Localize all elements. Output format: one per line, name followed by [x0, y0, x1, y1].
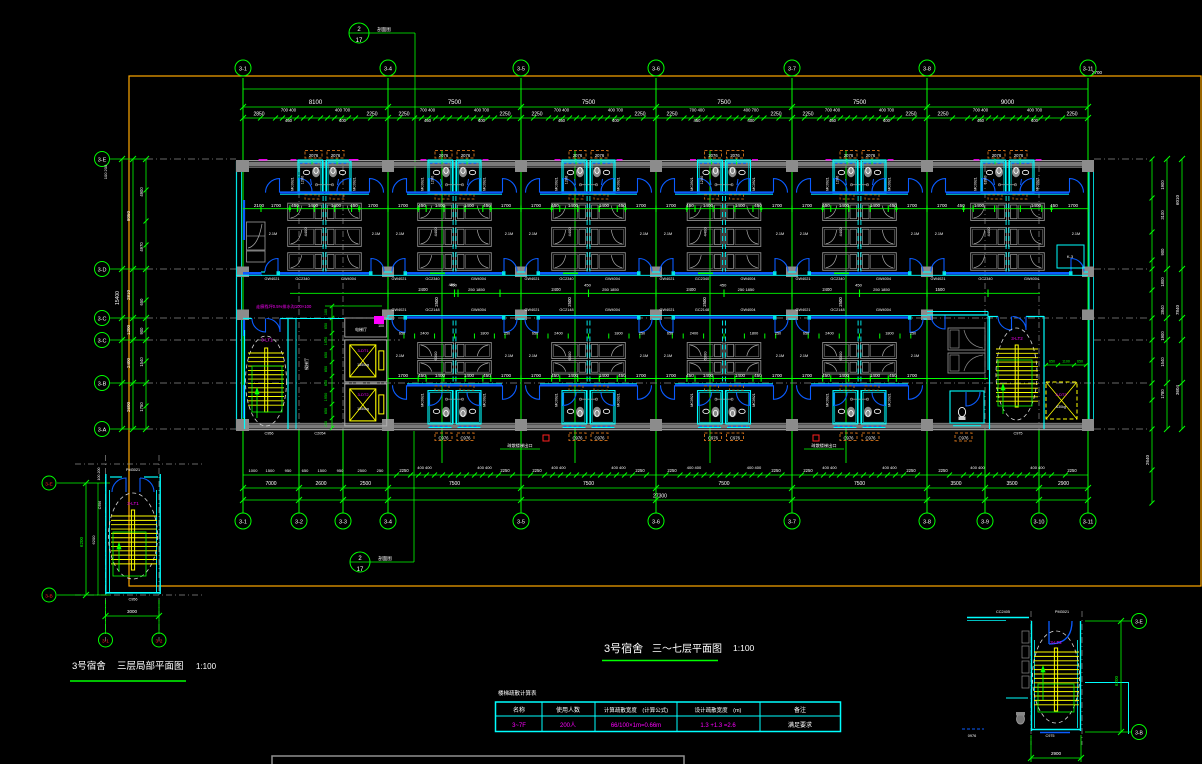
- svg-text:1800: 1800: [480, 332, 488, 336]
- svg-text:GW4021: GW4021: [931, 277, 946, 281]
- svg-text:450: 450: [285, 118, 293, 123]
- svg-text:2.1M: 2.1M: [396, 354, 404, 358]
- svg-text:2076: 2076: [573, 153, 583, 158]
- svg-text:2.1M: 2.1M: [800, 232, 808, 236]
- svg-text:400 400: 400 400: [687, 465, 702, 470]
- svg-text:250: 250: [910, 332, 916, 336]
- svg-text:GW4021: GW4021: [525, 308, 540, 312]
- svg-text:450: 450: [418, 373, 426, 378]
- svg-text:450: 450: [618, 203, 626, 208]
- svg-text:2.1M: 2.1M: [396, 232, 404, 236]
- svg-text:2.1M: 2.1M: [640, 232, 648, 236]
- svg-text:1750: 1750: [139, 402, 144, 412]
- svg-text:使用人数: 使用人数: [556, 706, 580, 714]
- svg-text:MC0921: MC0921: [483, 393, 487, 407]
- svg-text:250 1850: 250 1850: [738, 287, 755, 292]
- svg-text:GW4004: GW4004: [741, 308, 756, 312]
- svg-text:4400: 4400: [303, 227, 308, 237]
- svg-text:1400: 1400: [599, 203, 610, 208]
- svg-text:电梯厅: 电梯厅: [355, 326, 367, 332]
- svg-text:7500: 7500: [854, 481, 865, 487]
- svg-text:3-1: 3-1: [239, 520, 247, 526]
- svg-text:GC2340: GC2340: [425, 277, 439, 281]
- svg-text:1780: 1780: [1160, 389, 1165, 399]
- svg-text:6300: 6300: [838, 351, 843, 361]
- svg-text:3-DT3: 3-DT3: [1055, 392, 1067, 397]
- svg-text:4400: 4400: [567, 227, 572, 237]
- svg-text:1400: 1400: [464, 373, 475, 378]
- svg-text:1400: 1400: [870, 203, 881, 208]
- svg-text:GW4021: GW4021: [392, 308, 407, 312]
- svg-text:2250: 2250: [635, 468, 645, 473]
- svg-text:630kg: 630kg: [1056, 405, 1066, 409]
- svg-text:GC2148: GC2148: [830, 308, 844, 312]
- svg-text:2076: 2076: [730, 153, 740, 158]
- svg-text:7000: 7000: [265, 481, 276, 487]
- svg-text:MC0921: MC0921: [752, 177, 756, 191]
- svg-text:1400: 1400: [435, 203, 446, 208]
- svg-text:1000: 1000: [249, 468, 259, 473]
- svg-text:GW4004: GW4004: [605, 277, 620, 281]
- svg-text:3-2: 3-2: [295, 520, 303, 526]
- svg-text:3-7: 3-7: [788, 67, 796, 73]
- svg-text:C956: C956: [128, 598, 137, 602]
- svg-text:2.1M: 2.1M: [664, 354, 672, 358]
- svg-text:100: 100: [378, 324, 384, 328]
- svg-text:2840: 2840: [1160, 305, 1165, 315]
- svg-text:17: 17: [356, 38, 363, 44]
- svg-text:2.1M: 2.1M: [1072, 232, 1080, 236]
- svg-text:2076: 2076: [992, 153, 1002, 158]
- svg-text:1400: 1400: [1031, 203, 1042, 208]
- svg-text:1400: 1400: [735, 373, 746, 378]
- svg-text:1400: 1400: [974, 203, 985, 208]
- svg-text:GW4021: GW4021: [392, 277, 407, 281]
- svg-text:1700: 1700: [636, 203, 647, 208]
- svg-text:400 400: 400 400: [551, 465, 566, 470]
- svg-text:2.1M: 2.1M: [640, 354, 648, 358]
- svg-text:1700: 1700: [398, 373, 409, 378]
- svg-text:450: 450: [558, 118, 566, 123]
- svg-text:C976: C976: [958, 436, 969, 441]
- svg-text:1700: 1700: [636, 373, 647, 378]
- svg-text:100: 100: [324, 421, 328, 427]
- svg-text:3-C: 3-C: [98, 317, 107, 323]
- svg-text:MC0921: MC0921: [555, 177, 559, 191]
- svg-text:2250: 2250: [1067, 468, 1077, 473]
- svg-text:650: 650: [324, 408, 328, 414]
- svg-text:6300: 6300: [703, 351, 708, 361]
- svg-text:7500: 7500: [449, 481, 460, 487]
- svg-text:400 400: 400 400: [477, 465, 492, 470]
- svg-text:700 400: 700 400: [554, 108, 570, 113]
- svg-text:3-LT1: 3-LT1: [127, 501, 139, 506]
- svg-text:2400: 2400: [690, 332, 698, 336]
- svg-text:C976: C976: [843, 435, 854, 440]
- svg-text:1400: 1400: [308, 203, 319, 208]
- svg-text:1:100: 1:100: [733, 643, 755, 653]
- svg-text:3~7F: 3~7F: [512, 723, 526, 729]
- svg-text:1700: 1700: [937, 203, 948, 208]
- svg-text:剖面图: 剖面图: [378, 555, 392, 562]
- svg-text:3100: 3100: [1160, 210, 1165, 220]
- svg-text:3-5: 3-5: [517, 520, 525, 526]
- svg-text:7500: 7500: [718, 481, 729, 487]
- svg-text:1540: 1540: [1160, 357, 1165, 367]
- svg-text:1400: 1400: [703, 203, 714, 208]
- svg-text:1700: 1700: [398, 203, 409, 208]
- svg-text:1700: 1700: [907, 203, 918, 208]
- svg-text:3-E: 3-E: [45, 482, 52, 488]
- svg-text:400: 400: [612, 118, 620, 123]
- svg-text:C976: C976: [438, 435, 449, 440]
- svg-text:1400: 1400: [839, 373, 850, 378]
- svg-text:0976: 0976: [968, 734, 976, 738]
- svg-text:1700: 1700: [531, 373, 542, 378]
- svg-text:GW4021: GW4021: [796, 277, 811, 281]
- svg-text:1200: 1200: [431, 176, 435, 184]
- svg-text:GW4004: GW4004: [876, 308, 891, 312]
- svg-text:1500: 1500: [318, 468, 328, 473]
- svg-text:MC0921: MC0921: [752, 393, 756, 407]
- svg-text:4900: 4900: [139, 187, 144, 197]
- svg-text:1700: 1700: [501, 373, 512, 378]
- svg-text:1400: 1400: [568, 203, 579, 208]
- svg-text:1100: 1100: [1062, 360, 1070, 364]
- svg-text:2400: 2400: [418, 287, 428, 292]
- svg-text:250 1850: 250 1850: [602, 287, 619, 292]
- svg-text:3-6: 3-6: [652, 67, 660, 73]
- svg-text:3-A: 3-A: [98, 428, 107, 434]
- svg-text:1500: 1500: [266, 468, 276, 473]
- svg-text:400 400: 400 400: [882, 465, 897, 470]
- svg-text:6010: 6010: [1175, 194, 1180, 205]
- svg-text:400: 400: [1031, 118, 1039, 123]
- svg-text:C976: C976: [730, 435, 741, 440]
- svg-text:400: 400: [883, 118, 891, 123]
- svg-text:3-4: 3-4: [384, 67, 392, 73]
- svg-text:1700: 1700: [802, 373, 813, 378]
- svg-text:9000: 9000: [1001, 100, 1015, 106]
- svg-text:1900: 1900: [1160, 331, 1165, 341]
- svg-text:2500: 2500: [360, 481, 371, 487]
- svg-text:450: 450: [754, 203, 762, 208]
- svg-text:MC0921: MC0921: [421, 393, 425, 407]
- svg-text:1700: 1700: [802, 203, 813, 208]
- svg-text:450: 450: [584, 283, 591, 288]
- svg-text:GC2340: GC2340: [295, 277, 309, 281]
- svg-text:GC2340: GC2340: [559, 277, 573, 281]
- svg-text:3号宿舍: 3号宿舍: [72, 660, 106, 672]
- svg-text:3-8: 3-8: [923, 520, 931, 526]
- svg-text:7500: 7500: [448, 100, 462, 106]
- svg-text:C976: C976: [708, 435, 719, 440]
- svg-text:3号宿舍: 3号宿舍: [604, 641, 643, 655]
- svg-text:1700: 1700: [772, 373, 783, 378]
- svg-text:C976: C976: [460, 435, 471, 440]
- svg-text:450: 450: [977, 118, 985, 123]
- svg-text:计算疏散宽度 (计算公式): 计算疏散宽度 (计算公式): [604, 706, 668, 714]
- svg-text:C975: C975: [1013, 432, 1022, 436]
- svg-text:2.1M: 2.1M: [776, 354, 784, 358]
- svg-text:3-3: 3-3: [339, 520, 347, 526]
- svg-text:7500: 7500: [717, 100, 731, 106]
- svg-text:2400: 2400: [686, 287, 696, 292]
- svg-text:C976: C976: [594, 435, 605, 440]
- svg-text:K-3: K-3: [1067, 254, 1074, 259]
- svg-text:备注: 备注: [794, 706, 806, 714]
- svg-text:450: 450: [889, 373, 897, 378]
- svg-text:2076: 2076: [331, 153, 341, 158]
- svg-text:CC2405: CC2405: [996, 610, 1010, 614]
- svg-text:3-8: 3-8: [923, 67, 931, 73]
- svg-text:3-B: 3-B: [1135, 731, 1143, 737]
- svg-text:100: 100: [324, 309, 328, 315]
- svg-text:C976: C976: [572, 435, 583, 440]
- svg-text:GC2148: GC2148: [559, 308, 573, 312]
- svg-text:2400: 2400: [126, 357, 131, 368]
- svg-text:3-11: 3-11: [1083, 67, 1094, 73]
- svg-text:700 400: 700 400: [281, 108, 297, 113]
- svg-text:450: 450: [350, 203, 358, 208]
- svg-text:2076: 2076: [595, 153, 605, 158]
- svg-text:4970: 4970: [139, 242, 144, 252]
- svg-text:1700: 1700: [1068, 203, 1079, 208]
- svg-text:2250: 2250: [1066, 112, 1077, 118]
- svg-text:GW4021: GW4021: [660, 277, 675, 281]
- svg-text:3-LT1: 3-LT1: [261, 338, 273, 343]
- svg-text:1700: 1700: [666, 203, 677, 208]
- svg-text:1700: 1700: [907, 373, 918, 378]
- svg-text:2250: 2250: [771, 468, 781, 473]
- svg-text:1400: 1400: [331, 203, 342, 208]
- svg-text:450: 450: [551, 203, 559, 208]
- svg-text:1400: 1400: [464, 203, 475, 208]
- svg-text:2500: 2500: [567, 297, 572, 307]
- svg-text:2500: 2500: [358, 468, 368, 473]
- svg-text:1400: 1400: [599, 373, 610, 378]
- svg-text:GC2148: GC2148: [425, 308, 439, 312]
- svg-text:2850: 2850: [253, 112, 264, 118]
- svg-text:650: 650: [399, 332, 405, 336]
- svg-text:GW4021: GW4021: [796, 308, 811, 312]
- svg-text:3-4: 3-4: [384, 520, 392, 526]
- svg-text:GW4004: GW4004: [605, 308, 620, 312]
- svg-text:450: 450: [720, 283, 727, 288]
- svg-text:650: 650: [803, 332, 809, 336]
- svg-text:3-1: 3-1: [102, 639, 109, 645]
- svg-text:2076: 2076: [461, 153, 471, 158]
- svg-text:疏散楼梯出口: 疏散楼梯出口: [507, 442, 532, 449]
- svg-text:250 1850: 250 1850: [873, 287, 890, 292]
- svg-text:400 700: 400 700: [743, 108, 759, 113]
- svg-text:2250: 2250: [666, 112, 677, 118]
- svg-text:PM3021: PM3021: [1055, 610, 1069, 614]
- svg-text:GW4004: GW4004: [741, 277, 756, 281]
- svg-text:950: 950: [285, 468, 292, 473]
- svg-text:候梯厅: 候梯厅: [303, 358, 309, 370]
- svg-text:2250: 2250: [937, 112, 948, 118]
- svg-text:1900: 1900: [1160, 180, 1165, 190]
- svg-text:450: 450: [829, 118, 837, 123]
- svg-text:2600: 2600: [315, 481, 326, 487]
- svg-text:满足要求: 满足要求: [788, 721, 812, 729]
- svg-text:2500: 2500: [838, 297, 843, 307]
- svg-text:2.1M: 2.1M: [529, 354, 537, 358]
- svg-text:100 200: 100 200: [103, 164, 108, 179]
- svg-text:3000: 3000: [127, 609, 138, 614]
- svg-text:GW4021: GW4021: [265, 277, 280, 281]
- svg-text:2250: 2250: [398, 112, 409, 118]
- svg-text:1800: 1800: [1160, 277, 1165, 287]
- svg-text:3-C: 3-C: [98, 339, 107, 345]
- svg-text:2250: 2250: [500, 468, 510, 473]
- svg-text:1200: 1200: [565, 176, 569, 184]
- svg-text:250: 250: [377, 468, 384, 473]
- svg-text:C976: C976: [865, 435, 876, 440]
- svg-text:450: 450: [418, 203, 426, 208]
- svg-text:MC0921: MC0921: [690, 393, 694, 407]
- svg-text:3604: 3604: [1175, 384, 1180, 395]
- svg-text:2100: 2100: [254, 203, 265, 208]
- svg-text:2076: 2076: [439, 153, 449, 158]
- svg-text:3-10: 3-10: [1033, 520, 1044, 526]
- svg-text:1700: 1700: [531, 203, 542, 208]
- svg-text:1800: 1800: [614, 332, 622, 336]
- svg-text:1200: 1200: [301, 176, 305, 184]
- svg-text:MC0921: MC0921: [888, 393, 892, 407]
- svg-text:2400: 2400: [825, 332, 833, 336]
- svg-text:2500: 2500: [434, 297, 439, 307]
- svg-text:3-7: 3-7: [788, 520, 796, 526]
- svg-text:2250: 2250: [499, 112, 510, 118]
- svg-text:GW4021: GW4021: [660, 308, 675, 312]
- svg-text:6200: 6200: [79, 536, 84, 547]
- svg-text:650: 650: [532, 332, 538, 336]
- svg-text:7500: 7500: [582, 100, 596, 106]
- svg-text:MC0921: MC0921: [617, 393, 621, 407]
- svg-text:MC0921: MC0921: [291, 177, 295, 191]
- svg-text:650: 650: [302, 468, 309, 473]
- svg-text:GC2148: GC2148: [695, 308, 709, 312]
- svg-text:1800: 1800: [750, 332, 758, 336]
- svg-text:3-1: 3-1: [239, 67, 247, 73]
- svg-text:2400: 2400: [554, 332, 562, 336]
- svg-text:250: 250: [639, 332, 645, 336]
- svg-text:1700: 1700: [501, 203, 512, 208]
- svg-text:3500: 3500: [1006, 481, 1017, 487]
- svg-text:450: 450: [686, 373, 694, 378]
- svg-text:400 400: 400 400: [970, 465, 985, 470]
- svg-text:MC0921: MC0921: [826, 393, 830, 407]
- svg-text:疏散楼梯出口: 疏散楼梯出口: [811, 442, 836, 449]
- svg-text:650: 650: [1049, 360, 1055, 364]
- svg-text:2250: 2250: [802, 112, 813, 118]
- svg-text:GW4004: GW4004: [471, 277, 486, 281]
- svg-text:450: 450: [291, 203, 299, 208]
- svg-text:1540: 1540: [139, 357, 144, 367]
- svg-text:走廊找坪0.5%排水沟100×100: 走廊找坪0.5%排水沟100×100: [256, 303, 312, 310]
- svg-text:三～七层平面图: 三～七层平面图: [652, 643, 722, 655]
- svg-text:3-LT2: 3-LT2: [1011, 336, 1023, 341]
- svg-text:设计疏散宽度 (m): 设计疏散宽度 (m): [695, 706, 742, 714]
- svg-text:1.3 +1.3 =2.6: 1.3 +1.3 =2.6: [700, 723, 736, 729]
- svg-text:楼梯疏散计算表: 楼梯疏散计算表: [498, 689, 537, 697]
- svg-text:1700: 1700: [772, 203, 783, 208]
- svg-text:2.1M: 2.1M: [505, 232, 513, 236]
- svg-text:2400: 2400: [822, 287, 832, 292]
- svg-text:250 1850: 250 1850: [468, 287, 485, 292]
- svg-text:450: 450: [889, 203, 897, 208]
- svg-text:2.1M: 2.1M: [372, 232, 380, 236]
- svg-text:3-DT2: 3-DT2: [357, 392, 369, 397]
- svg-text:2900: 2900: [1058, 481, 1069, 487]
- svg-text:三层局部平面图: 三层局部平面图: [117, 660, 184, 672]
- svg-text:450: 450: [822, 203, 830, 208]
- svg-text:2250: 2250: [634, 112, 645, 118]
- svg-text:8050: 8050: [126, 210, 131, 221]
- svg-text:MC0921: MC0921: [421, 177, 425, 191]
- svg-text:8100: 8100: [309, 100, 323, 106]
- svg-text:2600: 2600: [126, 401, 131, 412]
- svg-text:MC0921: MC0921: [555, 393, 559, 407]
- svg-text:450: 450: [424, 118, 432, 123]
- svg-text:400 400: 400 400: [611, 465, 626, 470]
- svg-text:MC0921: MC0921: [1036, 177, 1040, 191]
- svg-text:1200: 1200: [700, 176, 704, 184]
- svg-text:2.1M: 2.1M: [935, 232, 943, 236]
- svg-text:900: 900: [1160, 248, 1165, 256]
- svg-text:250: 250: [504, 332, 510, 336]
- svg-text:450: 450: [957, 203, 965, 208]
- svg-text:3-6: 3-6: [652, 520, 660, 526]
- svg-text:C975: C975: [1045, 734, 1054, 738]
- svg-text:450: 450: [855, 283, 862, 288]
- svg-text:400 700: 400 700: [474, 108, 490, 113]
- svg-text:700 400: 700 400: [420, 108, 436, 113]
- svg-text:2250: 2250: [770, 112, 781, 118]
- svg-text:1200: 1200: [836, 176, 840, 184]
- svg-text:66/100×1m=0.66m: 66/100×1m=0.66m: [611, 723, 661, 729]
- svg-text:3-D: 3-D: [98, 268, 107, 274]
- svg-text:3-2: 3-2: [156, 639, 163, 645]
- svg-text:3-E: 3-E: [98, 158, 107, 164]
- svg-text:7500: 7500: [583, 481, 594, 487]
- svg-text:1400: 1400: [703, 373, 714, 378]
- svg-text:2076: 2076: [844, 153, 854, 158]
- svg-text:2400: 2400: [420, 332, 428, 336]
- svg-text:3-11: 3-11: [1083, 520, 1094, 526]
- svg-text:2.1M: 2.1M: [911, 232, 919, 236]
- svg-text:GW4004: GW4004: [471, 308, 486, 312]
- svg-text:450: 450: [754, 373, 762, 378]
- svg-text:4400: 4400: [986, 227, 991, 237]
- svg-text:400: 400: [748, 118, 756, 123]
- svg-text:MC0921: MC0921: [353, 177, 357, 191]
- svg-text:450: 450: [483, 203, 491, 208]
- svg-text:2500: 2500: [702, 297, 707, 307]
- svg-text:1:100: 1:100: [196, 662, 217, 671]
- svg-text:450: 450: [1050, 203, 1058, 208]
- svg-text:C956: C956: [98, 501, 102, 509]
- svg-text:700 400: 700 400: [689, 108, 705, 113]
- svg-text:400: 400: [339, 118, 347, 123]
- svg-text:1950: 1950: [324, 393, 328, 401]
- svg-text:1700: 1700: [666, 373, 677, 378]
- svg-text:450: 450: [822, 373, 830, 378]
- svg-text:2250: 2250: [803, 468, 813, 473]
- svg-text:2.1M: 2.1M: [911, 354, 919, 358]
